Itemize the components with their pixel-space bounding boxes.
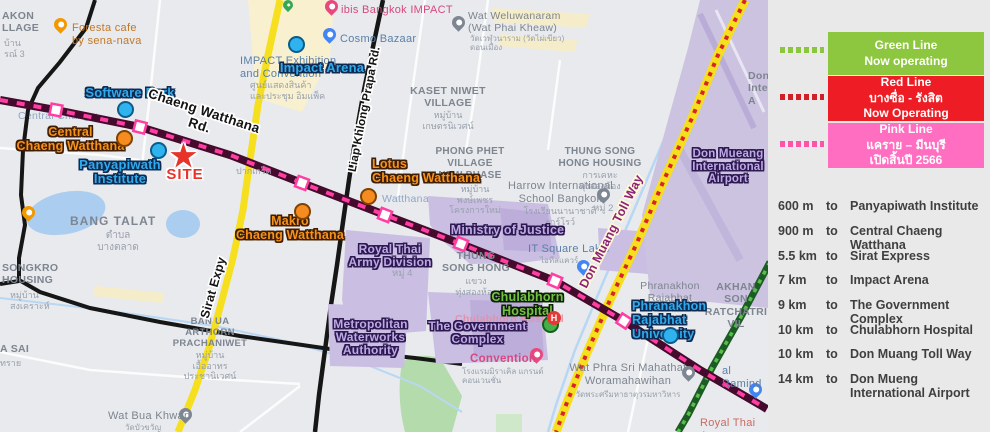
marker-software-park	[117, 101, 134, 118]
marker-makro-chaeng-watthana	[294, 203, 311, 220]
distance-place: The Government Complex	[850, 298, 990, 326]
distance-place: Impact Arena	[850, 273, 990, 287]
legend-red-route: บางซื่อ - รังสิต	[828, 91, 984, 107]
map-text-nakon-village: AKON LLAGE	[2, 10, 39, 35]
distance-value: 600 m	[778, 199, 826, 213]
distance-place: Sirat Express	[850, 249, 990, 263]
map-text-watthana: Watthana	[382, 193, 429, 205]
map-text-it-square-thai: ไอทีสแควร์	[540, 256, 578, 265]
map-text-wat-phra-sri: Wat Phra Sri Mahathat Woramahawihan	[568, 362, 688, 388]
distance-value: 7 km	[778, 273, 826, 287]
marker-lotus-chaeng-watthana	[360, 188, 377, 205]
map-text-ban-ua-thai: หมู่บ้าน เอื้ออาทร ประชานิเวศน์	[178, 350, 242, 382]
slide: AKON LLAGE บ้าน รณ์ 3 Foresta cafe by se…	[0, 0, 990, 432]
pink-line-swatch-icon	[780, 141, 824, 147]
map-text-bang-talat: BANG TALAT	[70, 214, 156, 228]
label-makro-chaeng-watthana: Makro Chaeng Watthana	[235, 215, 345, 243]
map-text-convention-thai: โรงแรมมิราเคิล แกรนด์ คอนเวนชั่น	[462, 367, 543, 386]
label-lotus-chaeng-watthana: Lotus Chaeng Watthana	[372, 158, 482, 186]
map-text-nakon-thai: บ้าน รณ์ 3	[4, 38, 25, 59]
distance-place: Don Mueng International Airport	[850, 372, 990, 400]
lake	[166, 210, 200, 238]
distance-value: 5.5 km	[778, 249, 826, 263]
site-star-icon: ★	[170, 140, 197, 173]
legend-green-status: Now operating	[828, 54, 984, 70]
distance-to: to	[826, 249, 850, 263]
park-area	[400, 356, 462, 432]
map-text-phong-phet-thai: หมู่บ้าน พงษ์เพชร โครงการใหม่	[445, 184, 505, 216]
legend-panel: Green Line Now operating Red Line บางซื่…	[768, 0, 990, 432]
map-text-wat-bua-khwan: Wat Bua Khwan	[108, 410, 190, 423]
map-text-wat-weluwanaram-thai: วัดเวฬุวนาราม (วัดไผ่เขียว) ดอนเมือง	[470, 34, 564, 53]
map-text-mu2: หมู่ 2	[593, 203, 613, 214]
marker-panyapiwath	[150, 142, 167, 159]
distance-place: Don Muang Toll Way	[850, 347, 990, 361]
map-text-kaset-niwet: KASET NIWET VILLAGE	[408, 85, 488, 110]
map-text-mu4: หมู่ 4	[392, 268, 412, 279]
distance-row: 600 mtoPanyapiwath Institute	[778, 199, 990, 213]
label-metropolitan-waterworks: Metropolitan Waterworks Authority	[328, 318, 413, 358]
label-ministry-of-justice: Ministry of Justice	[440, 224, 575, 238]
marker-phranakhon-university	[662, 327, 679, 344]
legend-green-line: Green Line Now operating	[828, 32, 984, 75]
legend-pink-status: เปิดสิ้นปี 2566	[828, 153, 984, 169]
legend-pink-route: แคราย – มีนบุรี	[828, 138, 984, 154]
red-line-swatch-icon	[780, 94, 824, 100]
map-text-impact-exhibition-thai: ศูนย์แสดงสินค้า และประชุม อิมแพ็ค	[250, 80, 325, 101]
distance-to: to	[826, 347, 850, 361]
distance-to: to	[826, 298, 850, 326]
map-text-al-ramind: al Ramind	[722, 365, 768, 391]
label-phranakhon-rajabhat-university: Phranakhon Rajabhat University	[632, 300, 752, 341]
distance-value: 9 km	[778, 298, 826, 326]
distance-to: to	[826, 273, 850, 287]
map-text-wat-bua-thai: วัดบัวขวัญ	[125, 423, 161, 432]
label-don-mueang-airport: Don Mueang International Airport	[688, 148, 768, 186]
green-line-swatch-icon	[780, 47, 824, 53]
distance-value: 10 km	[778, 323, 826, 337]
legend-red-line: Red Line บางซื่อ - รังสิต Now Operating	[828, 76, 984, 121]
map-text-sa-sai-thai: ทราย	[0, 358, 21, 369]
map-text-foresta-cafe: Foresta cafe by sena-nava	[72, 22, 142, 48]
marker-central-chaeng-watthana	[116, 130, 133, 147]
map-text-sa-sai: A SAI	[0, 343, 29, 355]
legend-red-status: Now Operating	[828, 106, 984, 122]
map-text-convention: Convention	[470, 353, 536, 367]
map-text-thung-song-hong-housing: THUNG SONG HONG HOUSING	[555, 146, 645, 170]
map-text-songkro-housing: SONGKRO HOUSING	[2, 262, 58, 287]
label-chulabhorn-hospital: Chulabhorn Hospital	[480, 291, 575, 319]
map-text-pak-kret: ปากเกร็ด	[236, 166, 271, 177]
label-royal-thai-army-division: Royal Thai Army Division	[345, 243, 435, 269]
legend-green-title: Green Line	[828, 38, 984, 54]
map-text-wat-weluwanaram: Wat Weluwanaram (Wat Phai Kheaw)	[468, 10, 561, 35]
distance-place: Chulabhorn Hospital	[850, 323, 990, 337]
map-text-songkro-thai: หมู่บ้าน สงเคราะห์	[10, 290, 50, 311]
distance-to: to	[826, 323, 850, 337]
distance-value: 10 km	[778, 347, 826, 361]
distance-row: 9 kmtoThe Government Complex	[778, 298, 990, 326]
map-text-thung-song-hong-housing-thai: การเคหะ ทุ่งสองห้อง	[568, 170, 632, 191]
map-canvas: AKON LLAGE บ้าน รณ์ 3 Foresta cafe by se…	[0, 0, 768, 432]
map-text-thung-song-hong: THUNG SONG HONG	[436, 250, 516, 275]
map-text-kaset-niwet-thai: หมู่บ้าน เกษตรนิเวศน์	[415, 110, 481, 131]
map-text-ibis: ibis Bangkok IMPACT	[341, 4, 453, 17]
distance-value: 14 km	[778, 372, 826, 400]
distance-to: to	[826, 224, 850, 252]
distance-place: Central Chaeng Watthana	[850, 224, 990, 252]
map-text-don-mueang-clipped: Don Inte A	[748, 70, 768, 107]
hospital-pin-icon: H	[547, 311, 561, 325]
legend-pink-title: Pink Line	[828, 122, 984, 138]
distance-place: Panyapiwath Institute	[850, 199, 990, 213]
distance-row: 10 kmtoChulabhorn Hospital	[778, 323, 990, 337]
label-impact-arena: Impact Arena	[262, 61, 382, 75]
distance-row: 10 kmtoDon Muang Toll Way	[778, 347, 990, 361]
map-text-wat-phra-sri-thai: วัดพระศรีมหาธาตุวรมหาวิหาร	[570, 390, 686, 399]
distance-row: 900 mtoCentral Chaeng Watthana	[778, 224, 990, 252]
label-government-complex: The Government Complex	[420, 320, 535, 346]
map-text-royal-thai-army: Royal Thai Arm	[700, 417, 768, 432]
marker-impact-arena	[288, 36, 305, 53]
distance-to: to	[826, 372, 850, 400]
distance-row: 7 kmtoImpact Arena	[778, 273, 990, 287]
distance-row: 14 kmtoDon Mueng International Airport	[778, 372, 990, 400]
map-text-bang-talat-thai: ตำบล บางตลาด	[85, 230, 151, 254]
distance-value: 900 m	[778, 224, 826, 252]
legend-pink-line: Pink Line แคราย – มีนบุรี เปิดสิ้นปี 256…	[828, 123, 984, 168]
distance-row: 5.5 kmtoSirat Express	[778, 249, 990, 263]
distance-to: to	[826, 199, 850, 213]
legend-red-title: Red Line	[828, 75, 984, 91]
